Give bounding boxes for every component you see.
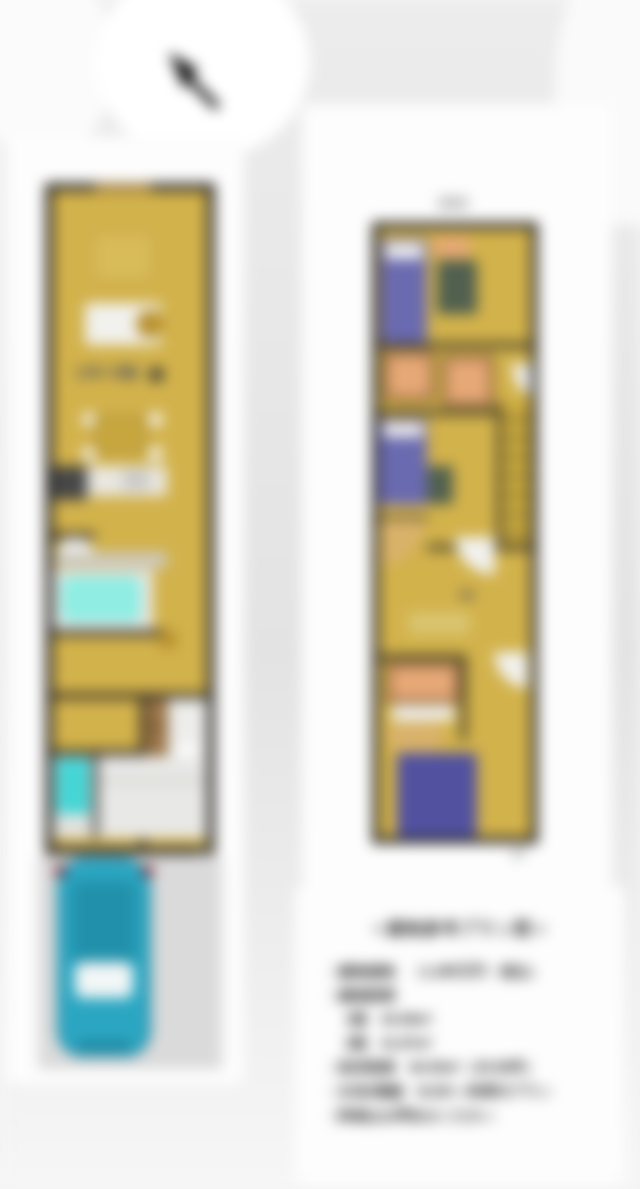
info-line: □延床面積 84.93m²（25.69坪） (331, 1055, 539, 1079)
desk-3 (387, 663, 459, 703)
north-arrow-icon (160, 48, 224, 112)
paper-glow-topleft (0, 0, 110, 150)
info-line: 2階 41.87m² (331, 1031, 433, 1055)
wall-segment (379, 410, 502, 415)
dining-table (94, 416, 146, 454)
bed-single-1 (381, 239, 427, 343)
storage-box-1 (384, 352, 434, 400)
info-line: □木造2階建・3LDK＋車庫付プラン (331, 1079, 553, 1103)
pillow (385, 243, 423, 259)
blurred-scene: LDK 16帖 1F (0, 0, 640, 1189)
genkan-entrance (98, 756, 207, 838)
car-windshield (75, 962, 133, 998)
car (57, 857, 151, 1057)
round-table (136, 310, 164, 338)
door-knob-circle (158, 630, 178, 650)
floorplan-sheet: LDK 16帖 1F (0, 0, 640, 1189)
info-line: □建物面積 (331, 983, 395, 1007)
kitchen-unit (53, 466, 87, 500)
door-swing (512, 364, 531, 394)
floorplan-1f: LDK 16帖 (45, 183, 215, 855)
tatami-area (92, 232, 154, 282)
wall-segment (53, 630, 165, 636)
bathtub (61, 576, 141, 622)
wall-segment (461, 655, 466, 740)
floor-label-2f: 2F (512, 848, 525, 860)
pillow (383, 423, 423, 437)
shower-pan (56, 758, 90, 814)
entry-door-top (95, 183, 151, 191)
hall-marking (460, 591, 474, 599)
bed-double (397, 753, 477, 837)
door-swing-tan (381, 519, 425, 565)
ldk-label: LDK 16帖 (76, 364, 138, 382)
blanket (387, 722, 443, 752)
vanity-counter (55, 552, 167, 568)
dining-chair (148, 412, 163, 427)
wall-segment (379, 655, 466, 660)
car-mirror-right (142, 865, 154, 877)
hall-label-band (408, 612, 470, 634)
stairs-2f (501, 402, 531, 545)
storage-box-2 (443, 356, 493, 406)
info-line: □建物価格 （1,485万円・税込） (331, 959, 543, 983)
car-mirror-left (54, 865, 66, 877)
desk-chair-1 (434, 237, 470, 257)
info-card-title: ＜建物参考プラン図＞ (295, 917, 625, 940)
ldk-label-marker (150, 368, 163, 381)
door-swing (455, 537, 495, 575)
info-card: ＜建物参考プラン図＞ □建物価格 （1,485万円・税込） □建物面積 1階 4… (295, 885, 625, 1185)
pillow-band (392, 705, 454, 721)
floor-label-1f: 1F (198, 845, 211, 857)
car-roof (72, 881, 136, 965)
bed-single-2 (379, 419, 427, 505)
genkan-step-line (98, 779, 207, 782)
info-line: □詳細はお問合せください (331, 1103, 496, 1127)
dining-chair (148, 446, 163, 461)
car-rear-detail (77, 1041, 131, 1051)
kitchen-sink (123, 470, 149, 490)
door-swing (494, 652, 528, 688)
floorplan-2f (372, 222, 538, 844)
desk-1 (437, 260, 477, 314)
wall-segment (379, 343, 531, 348)
balcony-marking (438, 197, 468, 209)
desk-2 (427, 466, 453, 504)
info-line: 1階 43.06m² (331, 1007, 433, 1031)
